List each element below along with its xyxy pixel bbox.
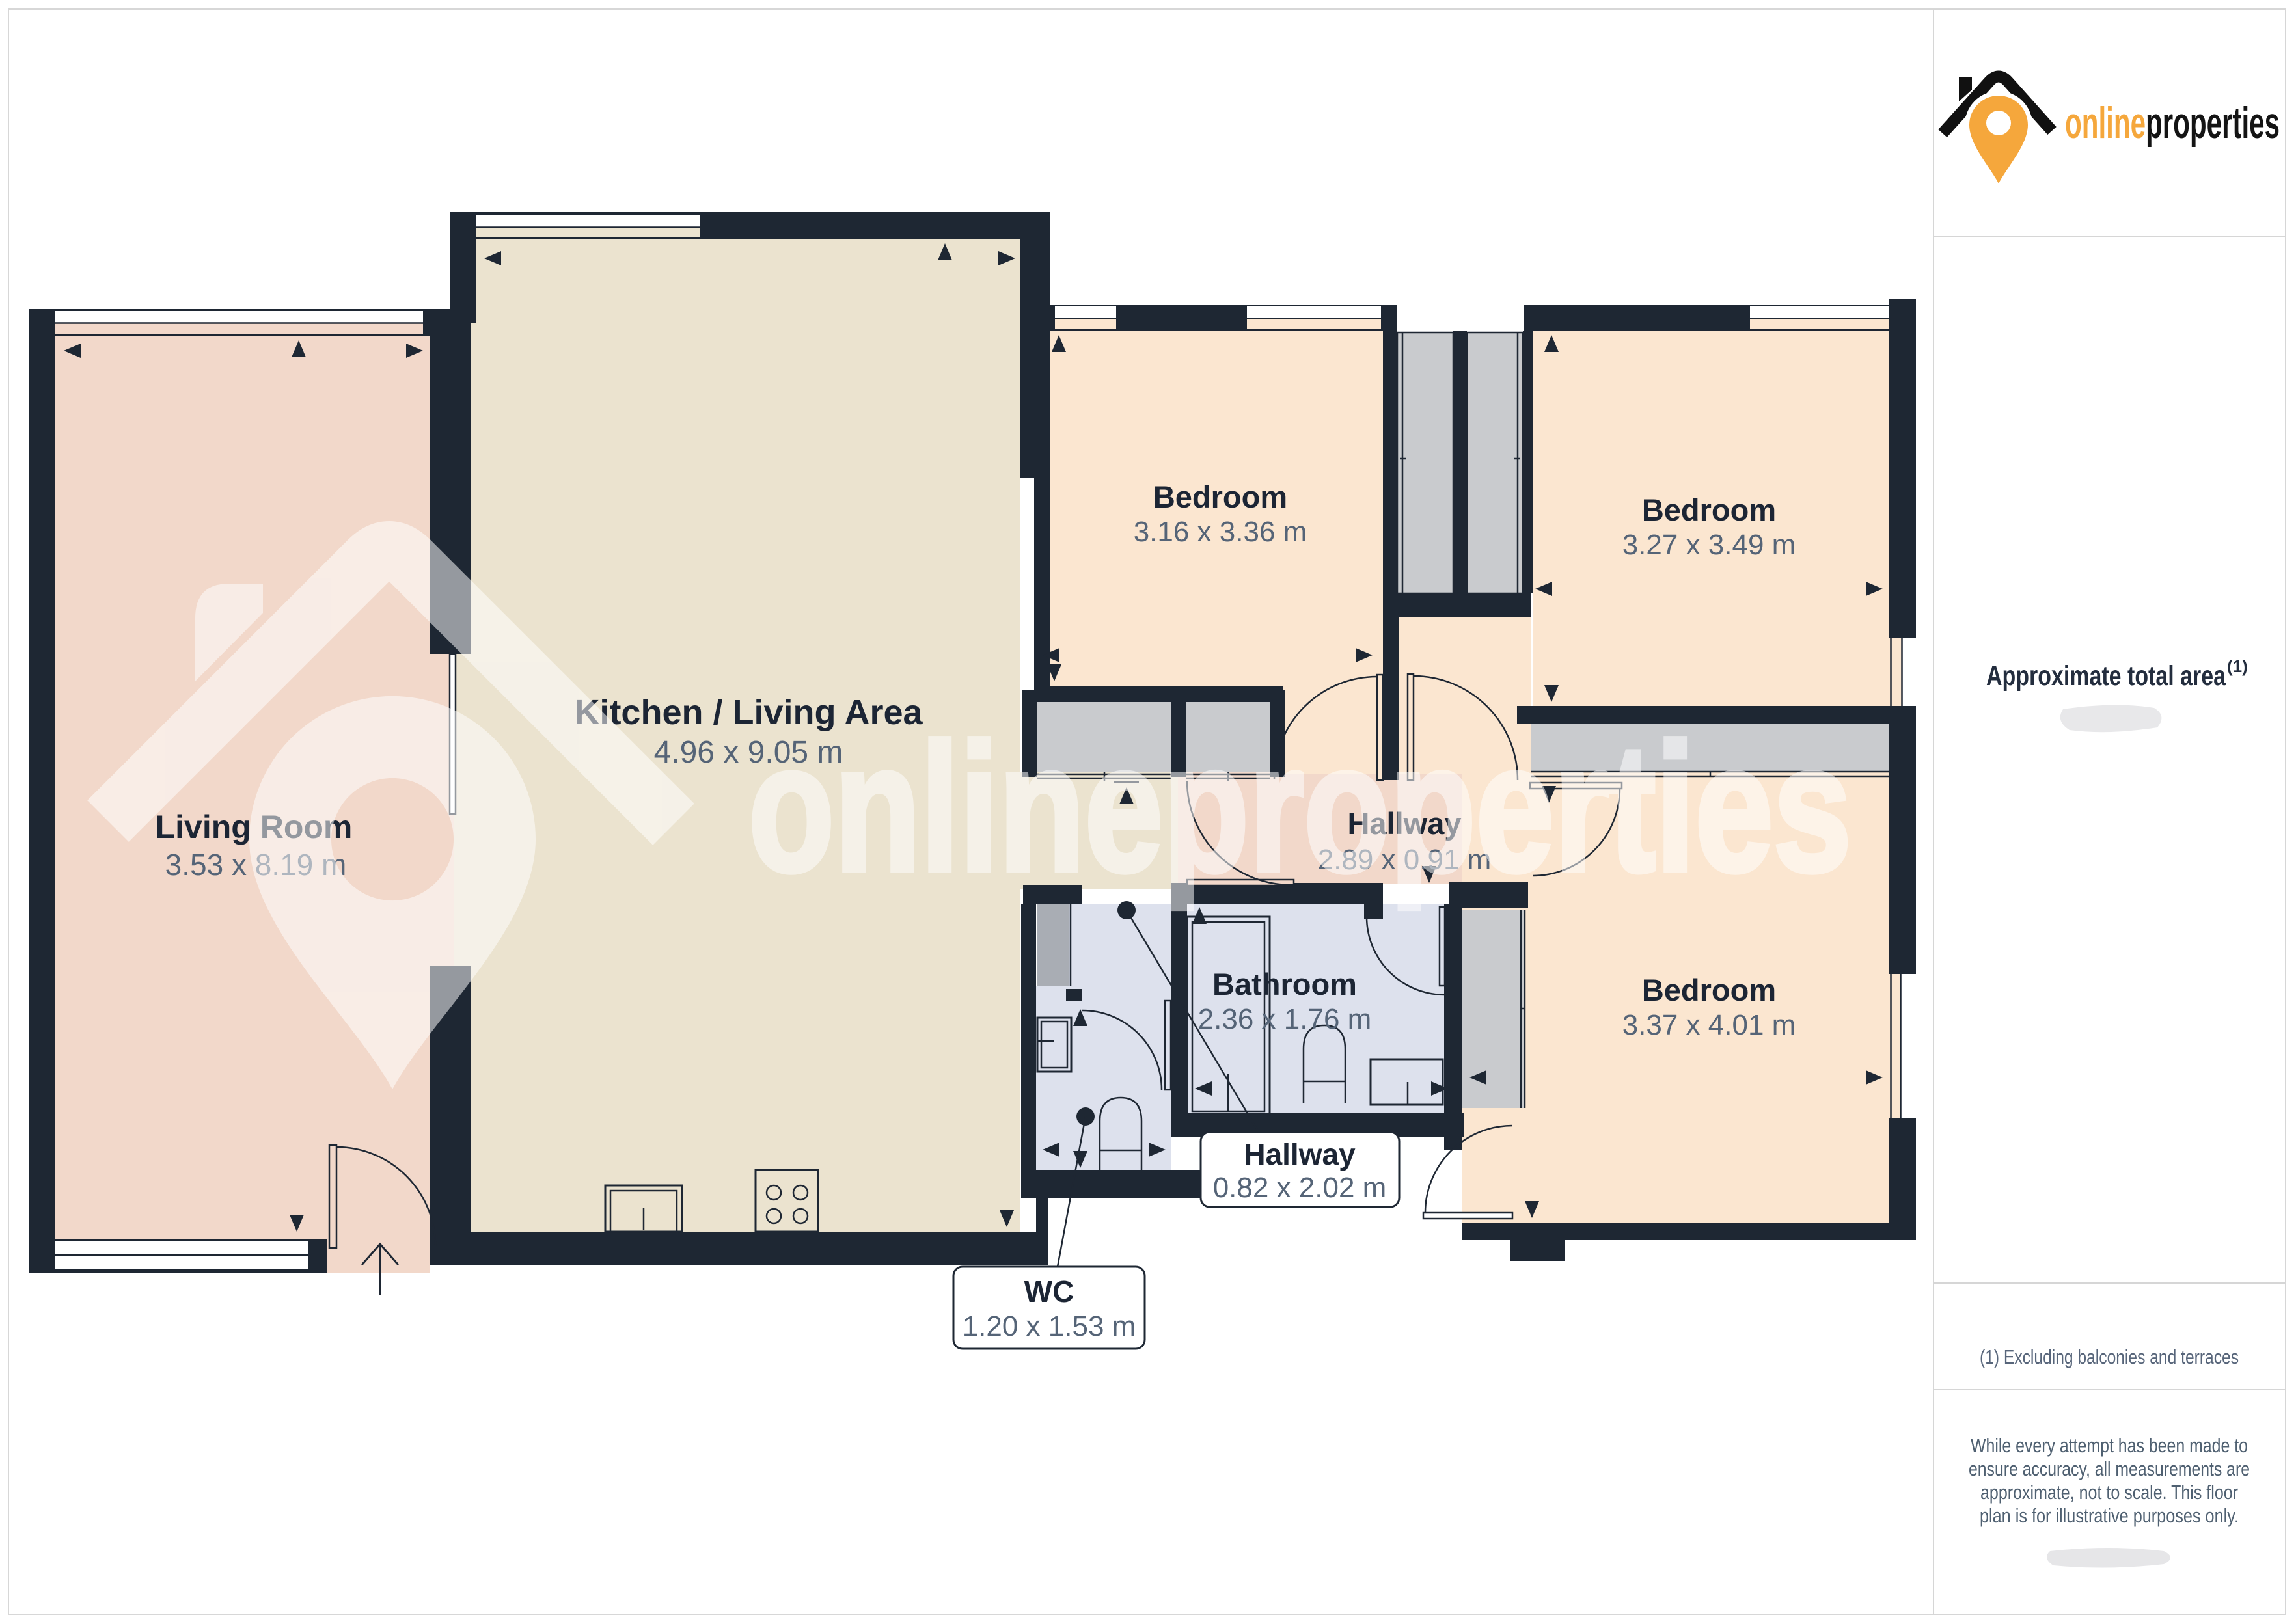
svg-text:While every attempt has been m: While every attempt has been made to	[1971, 1434, 2248, 1457]
svg-text:approximate, not to scale. Thi: approximate, not to scale. This floor	[1980, 1481, 2238, 1504]
svg-text:(1): (1)	[2227, 656, 2248, 676]
svg-text:3.16 x 3.36 m: 3.16 x 3.36 m	[1134, 516, 1307, 548]
svg-text:Bedroom: Bedroom	[1642, 973, 1776, 1007]
svg-text:0.82 x 2.02 m: 0.82 x 2.02 m	[1213, 1172, 1387, 1204]
svg-text:3.27 x 3.49 m: 3.27 x 3.49 m	[1622, 529, 1796, 561]
svg-text:Bedroom: Bedroom	[1642, 493, 1776, 527]
svg-text:Bedroom: Bedroom	[1153, 480, 1287, 514]
svg-text:Bathroom: Bathroom	[1212, 967, 1357, 1001]
svg-text:1.20 x 1.53 m: 1.20 x 1.53 m	[963, 1310, 1136, 1342]
svg-text:WC: WC	[1024, 1275, 1074, 1308]
svg-text:plan is for illustrative purpo: plan is for illustrative purposes only.	[1980, 1504, 2239, 1527]
svg-text:onlineproperties: onlineproperties	[748, 707, 1852, 910]
svg-text:Hallway: Hallway	[1244, 1137, 1356, 1171]
svg-text:2.36 x 1.76 m: 2.36 x 1.76 m	[1198, 1003, 1372, 1035]
svg-text:onlineproperties: onlineproperties	[2065, 98, 2280, 148]
svg-text:(1) Excluding balconies and te: (1) Excluding balconies and terraces	[1980, 1346, 2239, 1368]
svg-text:3.37 x 4.01 m: 3.37 x 4.01 m	[1622, 1009, 1796, 1041]
svg-text:ensure accuracy, all measureme: ensure accuracy, all measurements are	[1969, 1457, 2250, 1480]
svg-text:Approximate total area: Approximate total area	[1986, 660, 2226, 692]
